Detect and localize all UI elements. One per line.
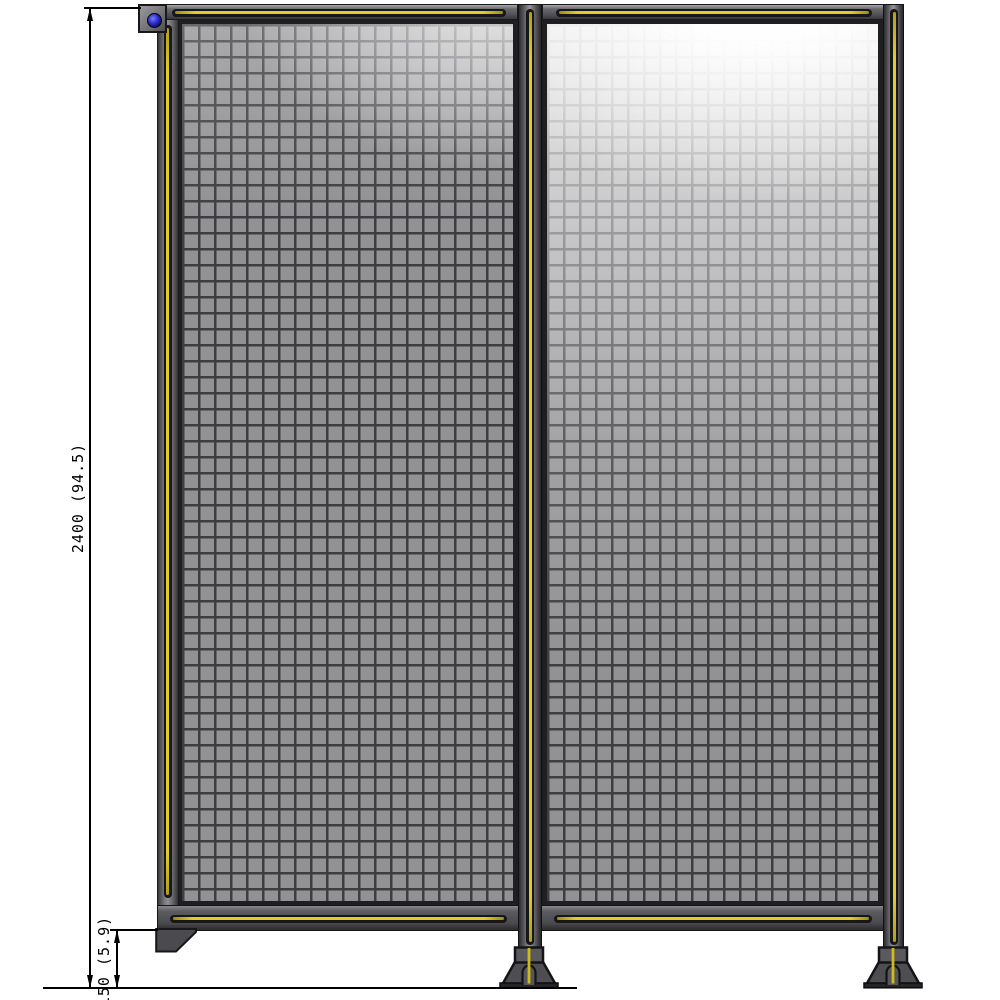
- ground-line: [43, 987, 577, 989]
- left-panel-highlight: [182, 24, 513, 901]
- left-frame-groove: [164, 25, 172, 898]
- right-foot: [863, 946, 923, 989]
- left-panel-left-frame: [157, 18, 179, 906]
- bottom-left-skirt: [155, 928, 199, 953]
- drawing-canvas: 2400 (94.5) 150 (5.9): [0, 0, 1000, 1000]
- arrow-down-icon: [87, 975, 93, 988]
- base-height-label: 150 (5.9): [95, 916, 113, 1000]
- right-top-rail-groove: [556, 9, 872, 17]
- bottom-rail-groove-left: [170, 915, 507, 923]
- overall-height-ext-line: [84, 7, 141, 8]
- center-foot: [499, 946, 559, 989]
- right-post: [883, 4, 904, 950]
- right-post-groove: [890, 9, 898, 945]
- right-panel-top-rail: [542, 4, 884, 20]
- bracket-bolt-icon: [147, 13, 162, 28]
- overall-height-dim-line: [89, 8, 91, 988]
- left-panel-mesh: [177, 19, 518, 906]
- arrow-up-icon: [87, 8, 93, 21]
- left-panel-top-rail: [157, 4, 518, 20]
- arrow-up-icon: [114, 930, 120, 943]
- overall-height-label: 2400 (94.5): [69, 443, 87, 553]
- wall-bracket: [138, 4, 167, 33]
- bottom-rail-groove-right: [554, 915, 872, 923]
- left-top-rail-groove: [172, 9, 506, 17]
- right-panel-highlight: [547, 24, 878, 901]
- right-panel-mesh: [542, 19, 883, 906]
- center-post: [518, 4, 542, 950]
- arrow-down-icon: [114, 975, 120, 988]
- center-post-groove: [526, 9, 534, 945]
